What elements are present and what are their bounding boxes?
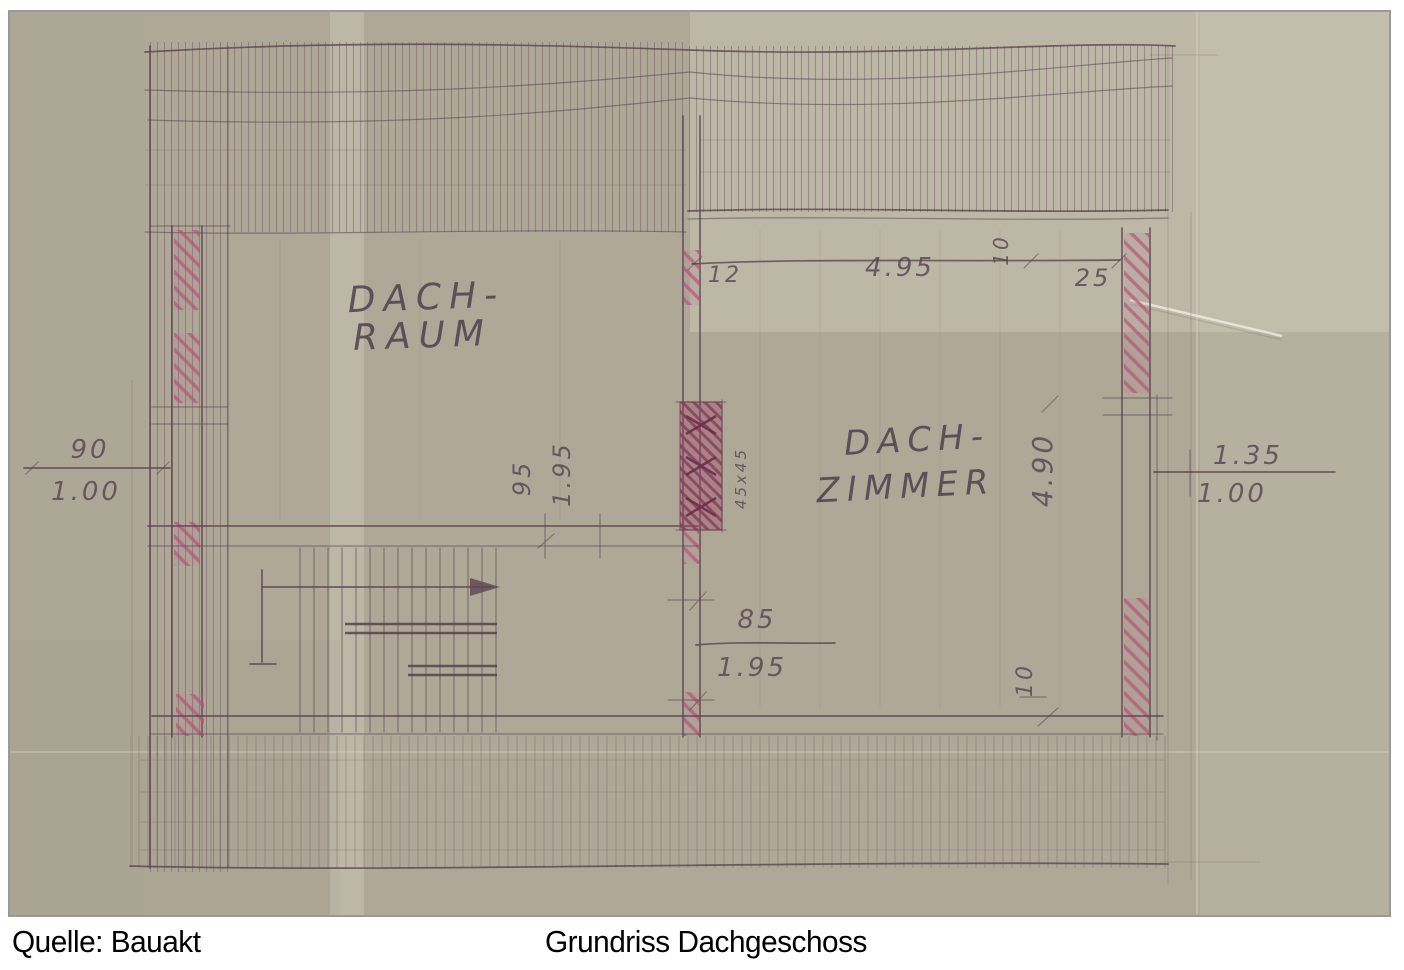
- dim-top-tick: 10: [989, 234, 1013, 265]
- dim-top-offset: 12: [708, 263, 742, 288]
- dim-room-depth: 4.90: [1026, 433, 1059, 507]
- dim-right-height: 1.00: [1197, 479, 1267, 509]
- caption-source: Quelle: Bauakt: [12, 924, 201, 960]
- dachraum-line2: RAUM: [352, 313, 492, 359]
- dim-right-door-width: 85: [737, 605, 776, 635]
- room-label-dachraum: DACH- RAUM: [347, 275, 507, 359]
- dim-mid-door-width: 95: [508, 460, 536, 497]
- dim-right-door-height: 1.95: [717, 653, 787, 683]
- dim-left-height: 1.00: [51, 477, 121, 507]
- dim-bottom-tick: 10: [1013, 663, 1038, 697]
- screenshot-root: 90 1.00 1.35 1.00 12 4.95 10 25: [0, 0, 1404, 970]
- dim-top-room-width: 4.95: [865, 253, 935, 283]
- dim-left-width: 90: [70, 435, 109, 465]
- floorplan-photo: 90 1.00 1.35 1.00 12 4.95 10 25: [0, 0, 1404, 922]
- dachzimmer-line1: DACH-: [843, 416, 991, 464]
- chimney: [676, 400, 726, 532]
- dim-chimney-size: 45x45: [732, 447, 750, 509]
- dim-top-wall-thickness: 25: [1075, 264, 1112, 292]
- dim-mid-door-height: 1.95: [548, 441, 576, 506]
- caption-title: Grundriss Dachgeschoss: [545, 924, 867, 960]
- floorplan-drawing: 90 1.00 1.35 1.00 12 4.95 10 25: [0, 0, 1404, 922]
- caption-bar: Quelle: Bauakt Grundriss Dachgeschoss: [0, 922, 1404, 970]
- dim-right-width: 1.35: [1213, 441, 1283, 471]
